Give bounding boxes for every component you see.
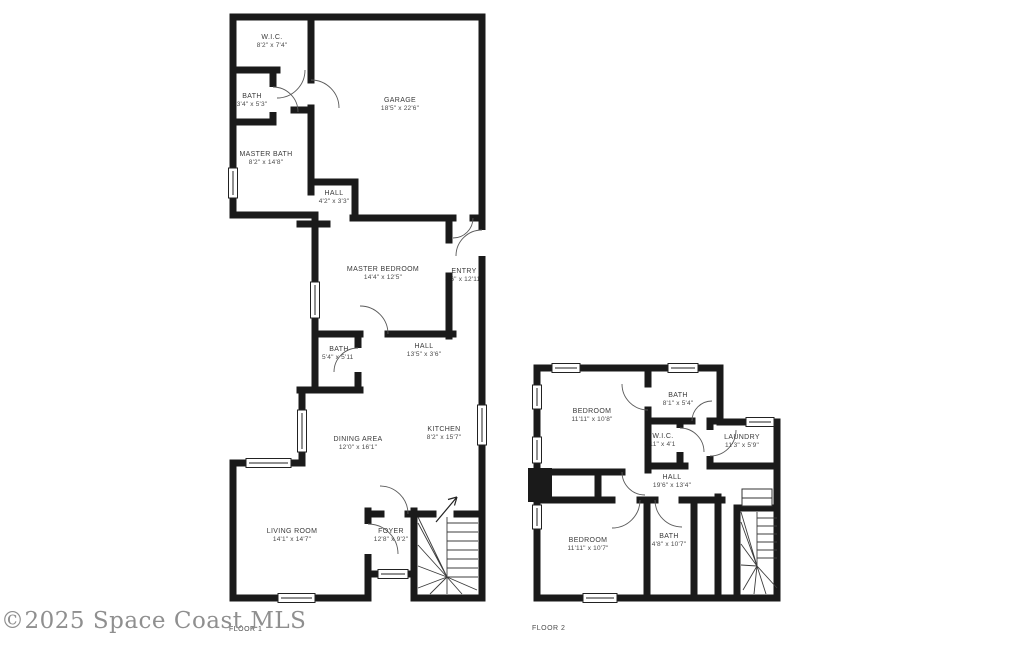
- room-label-bedroom2-f2: BEDROOM 11'11" x 10'7": [567, 536, 608, 554]
- floor1-walls: [233, 17, 482, 598]
- room-label-bath2-f2: BATH 4'8" x 10'7": [652, 532, 686, 550]
- room-label-wic-f2: W.I.C. 3'11" x 4'10": [644, 432, 682, 450]
- room-label-dining-area: DINING AREA 12'0" x 16'1": [334, 435, 383, 453]
- room-label-entry: ENTRY 3'6" x 12'11": [445, 267, 483, 285]
- stairs-direction-arrow-icon: [436, 497, 457, 522]
- room-label-bath1-f2: BATH 8'1" x 5'4": [663, 391, 694, 409]
- room-label-hall-f2: HALL 19'6" x 13'4": [653, 473, 691, 491]
- floor2-caption: FLOOR 2: [532, 625, 565, 632]
- floorplan-image: W.I.C. 8'2" x 7'4" BATH 3'4" x 5'3" MAST…: [0, 0, 1024, 657]
- room-label-garage: GARAGE 18'5" x 22'6": [381, 96, 419, 114]
- room-label-bedroom1-f2: BEDROOM 11'11" x 10'8": [571, 407, 612, 425]
- floor1-stairs-icon: [418, 517, 478, 594]
- room-label-master-bedroom: MASTER BEDROOM 14'4" x 12'5": [347, 265, 419, 283]
- room-label-laundry: LAUNDRY 11'3" x 5'9": [724, 433, 760, 451]
- floor-plan-svg: [0, 0, 1024, 657]
- door-openings: [269, 87, 715, 554]
- room-label-living-room: LIVING ROOM 14'1" x 14'7": [267, 527, 318, 545]
- floor2-stairs-icon: [741, 512, 777, 594]
- room-label-foyer: FOYER 12'8" x 9'2": [374, 527, 408, 545]
- room-label-hall-long-f1: HALL 13'5" x 3'6": [407, 342, 441, 360]
- room-label-kitchen: KITCHEN 8'2" x 15'7": [427, 425, 461, 443]
- closet-shelf-icon: [742, 489, 772, 506]
- room-label-master-bath: MASTER BATH 8'2" x 14'8": [239, 150, 292, 168]
- chimney-block: [528, 468, 552, 502]
- room-label-bath-upper-f1: BATH 3'4" x 5'3": [237, 92, 268, 110]
- room-label-hall-small-f1: HALL 4'2" x 3'3": [319, 189, 350, 207]
- room-label-wic-f1: W.I.C. 8'2" x 7'4": [257, 33, 288, 51]
- mls-watermark: ©2025 Space Coast MLS: [1, 608, 306, 634]
- room-label-bath-mid-f1: BATH 5'4" x 5'11": [322, 345, 356, 363]
